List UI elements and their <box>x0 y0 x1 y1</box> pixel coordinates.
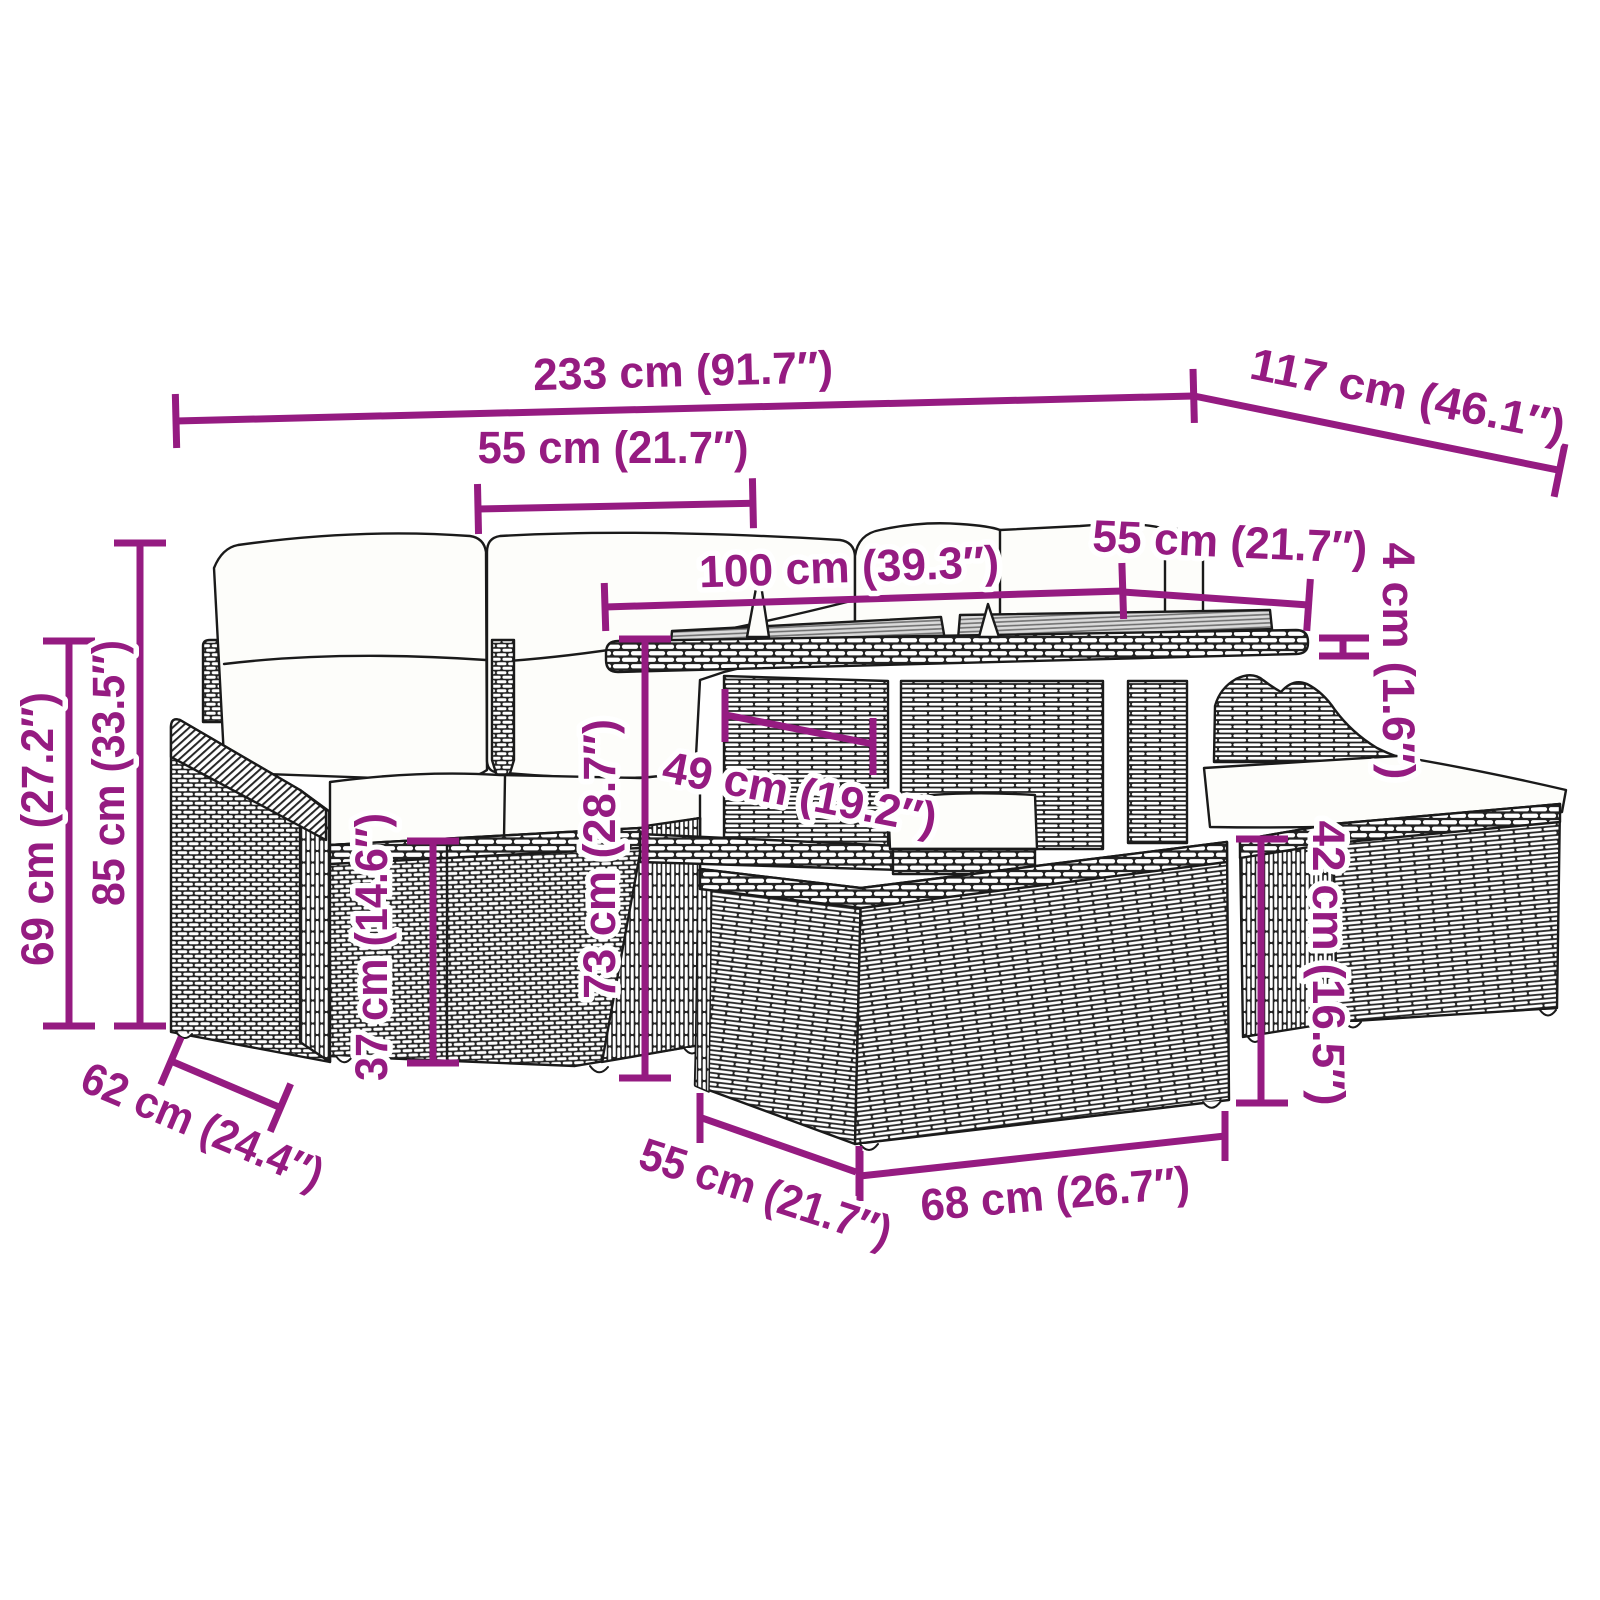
svg-text:73 cm (28.7″): 73 cm (28.7″) <box>574 719 625 999</box>
svg-text:37 cm (14.6″): 37 cm (14.6″) <box>346 813 397 1081</box>
svg-text:85 cm (33.5″): 85 cm (33.5″) <box>83 640 134 906</box>
svg-text:233 cm (91.7″): 233 cm (91.7″) <box>532 341 833 400</box>
svg-text:42 cm (16.5″): 42 cm (16.5″) <box>1303 821 1354 1106</box>
svg-text:55 cm (21.7″): 55 cm (21.7″) <box>478 422 749 473</box>
svg-text:4 cm (1.6″): 4 cm (1.6″) <box>1373 543 1424 780</box>
svg-text:69 cm (27.2″): 69 cm (27.2″) <box>12 692 63 966</box>
svg-text:100 cm (39.3″): 100 cm (39.3″) <box>698 536 1000 597</box>
